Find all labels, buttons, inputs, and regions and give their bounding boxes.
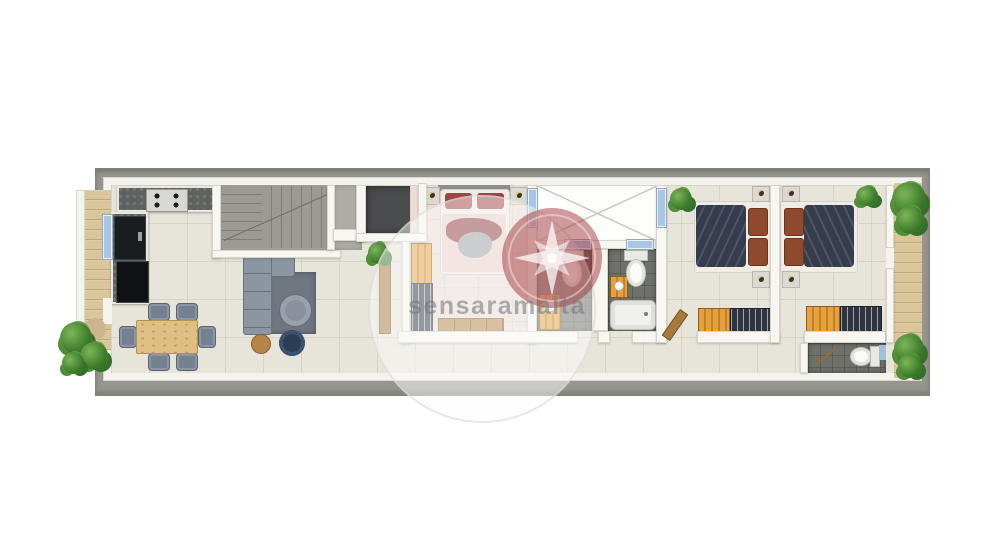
bedroom-window: [657, 189, 666, 227]
terrace-door-opening: [886, 248, 894, 268]
light-shaft: [537, 185, 658, 242]
wall: [886, 268, 894, 343]
armchair: [279, 294, 312, 327]
wardrobe: [730, 308, 772, 333]
sofa: [243, 255, 272, 335]
plant-icon: [670, 188, 692, 210]
plant-icon: [368, 242, 388, 264]
toilet-icon: [626, 259, 646, 287]
wardrobe: [411, 243, 432, 285]
nightstand: [782, 271, 800, 288]
refrigerator: [116, 261, 149, 303]
dining-table: [136, 320, 198, 354]
bathtub: [610, 300, 656, 330]
plant-icon: [80, 342, 108, 370]
dining-chair: [176, 353, 198, 371]
pillow: [748, 208, 768, 236]
nightstand: [510, 187, 528, 205]
wall: [598, 331, 610, 343]
wall: [592, 249, 608, 331]
wall: [212, 185, 221, 258]
dining-chair: [198, 326, 216, 348]
wardrobe: [806, 306, 840, 332]
faucet-icon: [138, 232, 142, 241]
bathroom-sink-unit: [610, 276, 628, 298]
toilet-icon: [562, 259, 582, 287]
wall: [804, 331, 886, 343]
shower-glass: [879, 345, 886, 360]
nightstand: [752, 271, 770, 288]
wall: [697, 331, 780, 343]
pillow: [784, 208, 804, 236]
dining-chair: [148, 353, 170, 371]
pillow: [445, 193, 472, 209]
pillow: [784, 238, 804, 266]
bathroom-transom-window: [627, 240, 653, 249]
wardrobe: [411, 283, 433, 332]
plant-icon: [62, 352, 84, 374]
stove-icon: [146, 189, 188, 212]
kitchen-window: [103, 215, 112, 259]
bed-duvet: [696, 205, 746, 267]
wall: [770, 185, 780, 343]
master-bedroom-door: [379, 260, 391, 334]
wardrobe: [840, 306, 882, 332]
shaft-cross-lines: [538, 186, 657, 241]
wall: [356, 233, 427, 242]
plant-icon: [856, 186, 878, 206]
wardrobe: [698, 308, 730, 333]
pillow: [477, 193, 504, 209]
wall: [212, 250, 341, 258]
plant-icon: [896, 206, 924, 234]
floorplan-image: sensaramalta: [0, 0, 1000, 550]
side-table: [251, 334, 271, 354]
nightstand: [782, 186, 800, 202]
coffee-table: [279, 330, 305, 356]
balcony-door-opening: [103, 298, 112, 324]
plant-icon: [898, 354, 922, 378]
dining-chair: [176, 303, 198, 321]
wall: [402, 241, 410, 344]
toilet-icon: [850, 347, 872, 366]
bathroom-vanity: [539, 294, 561, 330]
nightstand: [752, 186, 770, 202]
dining-chair: [119, 326, 137, 348]
bathroom-transom-window: [565, 240, 591, 249]
wall: [800, 343, 808, 373]
wall: [398, 331, 578, 343]
bed-duvet: [804, 205, 854, 267]
pillow: [748, 238, 768, 266]
shaft-window: [528, 189, 537, 227]
bathtub-drain: [644, 312, 648, 316]
dining-chair: [148, 303, 170, 321]
